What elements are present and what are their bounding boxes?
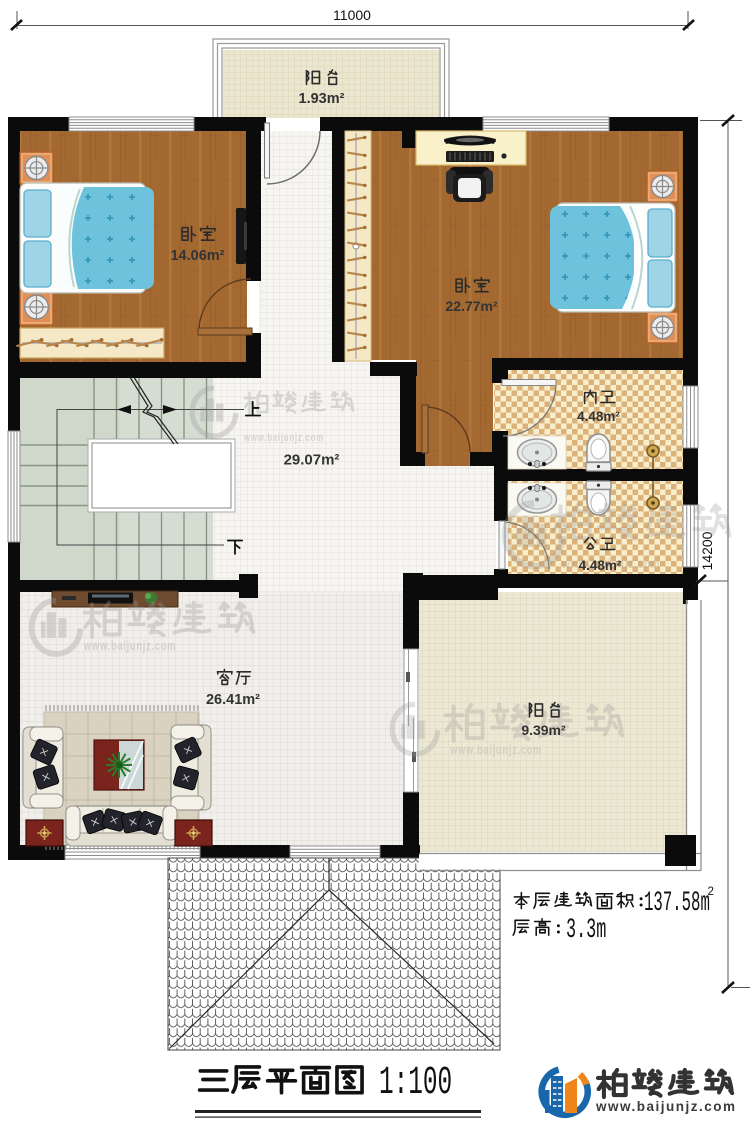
svg-text:14200: 14200 bbox=[699, 531, 715, 570]
svg-text:1.93m²: 1.93m² bbox=[299, 91, 345, 107]
svg-text:1:100: 1:100 bbox=[379, 1059, 452, 1105]
svg-text:www.baijunjz.com: www.baijunjz.com bbox=[83, 640, 176, 654]
svg-text:9.39m²: 9.39m² bbox=[521, 722, 566, 738]
svg-text:2: 2 bbox=[708, 886, 714, 898]
svg-text:137.58m: 137.58m bbox=[644, 887, 710, 919]
svg-text:4.48m²: 4.48m² bbox=[579, 558, 622, 573]
svg-text:11000: 11000 bbox=[333, 7, 371, 23]
svg-text:22.77m²: 22.77m² bbox=[445, 298, 497, 314]
svg-text:www.baijunjz.com: www.baijunjz.com bbox=[449, 744, 542, 758]
svg-text:www.baijunjz.com: www.baijunjz.com bbox=[595, 1099, 737, 1114]
svg-text:26.41m²: 26.41m² bbox=[206, 692, 260, 708]
svg-text:3.3m: 3.3m bbox=[566, 914, 606, 946]
svg-text:14.06m²: 14.06m² bbox=[170, 248, 224, 264]
svg-text:29.07m²: 29.07m² bbox=[284, 452, 340, 469]
svg-text:4.48m²: 4.48m² bbox=[577, 409, 620, 424]
svg-text:www.baijunjz.com: www.baijunjz.com bbox=[243, 432, 324, 445]
